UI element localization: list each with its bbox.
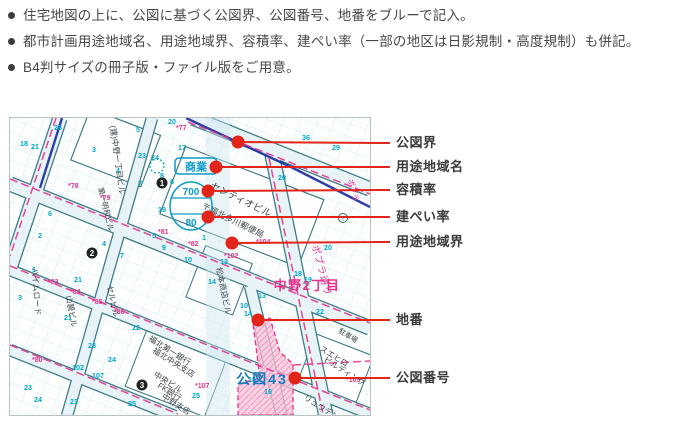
zoning-name-text: 商業 bbox=[185, 160, 208, 174]
lot-number-label: 20 bbox=[278, 173, 286, 182]
lot-number-label: 20 bbox=[324, 243, 332, 252]
lot-number-label: 9 bbox=[162, 243, 166, 252]
bullet-text: 住宅地図の上に、公図に基づく公図界、公図番号、地番をブルーで記入。 bbox=[23, 7, 474, 25]
callout-label-zoning-boundary: 用途地域界 bbox=[396, 232, 464, 252]
blue-map-sample: 1821263452324208719110131414212223242510… bbox=[10, 118, 370, 415]
landmark-post-mark: 〒 bbox=[340, 216, 346, 223]
lot-number-label: 21 bbox=[31, 142, 39, 151]
bullet-text: 都市計画用途地域名、用途地域界、容積率、建ぺい率（一部の地区は日影規制・高度規制… bbox=[23, 33, 640, 51]
callout-label-kozu-number: 公図番号 bbox=[396, 368, 450, 388]
lot-number-label: 10 bbox=[240, 301, 248, 310]
lot-number-label: 14 bbox=[208, 277, 216, 286]
lot-number-label: 25 bbox=[128, 399, 136, 408]
lot-number-label: 3 bbox=[18, 293, 22, 302]
lot-number-label: 19 bbox=[158, 205, 166, 214]
lot-number-label: 8 bbox=[170, 177, 174, 186]
bullet-icon bbox=[8, 38, 15, 45]
lot-number-label: 16 bbox=[264, 387, 272, 396]
lot-number-label: 25 bbox=[192, 391, 200, 400]
boundary-number-label: *104 bbox=[256, 239, 271, 246]
bullet-icon bbox=[8, 12, 15, 19]
lot-number-label: 6 bbox=[48, 209, 52, 218]
kozu-number-text: 公図43 bbox=[236, 371, 288, 387]
bullet-item: 住宅地図の上に、公図に基づく公図界、公図番号、地番をブルーで記入。 bbox=[8, 7, 698, 25]
boundary-number-label: *102 bbox=[224, 253, 239, 260]
boundary-number-label: *78 bbox=[68, 183, 79, 190]
lot-number-label: 18 bbox=[20, 139, 28, 148]
lot-number-label: 107 bbox=[92, 371, 104, 380]
lot-number-label: 7 bbox=[138, 179, 142, 188]
lot-number-label: 23 bbox=[24, 383, 32, 392]
floor-area-ratio-text: 700 bbox=[183, 187, 200, 198]
boundary-number-label: *85 bbox=[92, 299, 103, 306]
lot-number-label: 3 bbox=[92, 145, 96, 154]
callout-label-lot-number: 地番 bbox=[396, 310, 423, 330]
lot-number-label: 4 bbox=[102, 239, 106, 248]
lot-number-label: 21 bbox=[74, 275, 82, 284]
boundary-number-label: *83 bbox=[48, 279, 59, 286]
boundary-number-label: *80 bbox=[32, 357, 43, 364]
lot-number-label: 24 bbox=[34, 395, 42, 404]
lot-number-label: 23 bbox=[88, 341, 96, 350]
building-coverage-text: 80 bbox=[185, 218, 197, 229]
lot-number-label: 29 bbox=[332, 143, 340, 152]
blue-wash-band bbox=[206, 118, 230, 415]
landmark-icon: 〒 bbox=[339, 214, 348, 223]
lot-number-label: 5 bbox=[136, 125, 140, 134]
bullet-item: B4判サイズの冊子版・ファイル版をご用意。 bbox=[8, 59, 698, 77]
callout-label-floor-area-ratio: 容積率 bbox=[396, 180, 437, 200]
lot-number-label: 13 bbox=[258, 291, 266, 300]
boundary-number-label: *107 bbox=[195, 383, 210, 390]
lot-number-label: 17 bbox=[178, 143, 186, 152]
lot-number-label: 22 bbox=[132, 323, 140, 332]
lot-number-label: 18 bbox=[294, 269, 302, 278]
block-number-text: 1 bbox=[160, 179, 165, 188]
bullet-icon bbox=[8, 64, 15, 71]
callout-label-building-coverage: 建ぺい率 bbox=[396, 207, 450, 227]
lot-number-label: 2 bbox=[38, 231, 42, 240]
lot-number-label: 23 bbox=[138, 151, 146, 160]
callout-label-kozu-boundary: 公図界 bbox=[396, 133, 437, 153]
lot-number-label: 1 bbox=[202, 233, 206, 242]
lot-number-label: 24 bbox=[108, 355, 116, 364]
lot-number-label: 24 bbox=[151, 153, 159, 162]
lot-number-label: 5 bbox=[152, 231, 156, 240]
bullet-item: 都市計画用途地域名、用途地域界、容積率、建ぺい率（一部の地区は日影規制・高度規制… bbox=[8, 33, 698, 51]
lot-number-label: 14 bbox=[244, 309, 252, 318]
lot-number-label: 23 bbox=[70, 397, 78, 406]
block-number-text: 3 bbox=[140, 381, 145, 390]
page: { "bullets": [ "住宅地図の上に、公図に基づく公図界、公図番号、地… bbox=[0, 0, 700, 426]
lot-number-label: 7 bbox=[120, 251, 124, 260]
callout-label-zoning-name: 用途地域名 bbox=[396, 157, 464, 177]
boundary-number-label: *77 bbox=[176, 125, 187, 132]
lot-number-label: 10 bbox=[184, 255, 192, 264]
boundary-number-label: *81 bbox=[158, 229, 169, 236]
block-number-text: 2 bbox=[90, 249, 95, 258]
lot-number-label: 20 bbox=[168, 118, 176, 126]
bullet-text: B4判サイズの冊子版・ファイル版をご用意。 bbox=[23, 59, 300, 77]
lot-number-label: 102 bbox=[72, 363, 84, 372]
lot-number-label: 36 bbox=[302, 133, 310, 142]
feature-bullet-list: 住宅地図の上に、公図に基づく公図界、公図番号、地番をブルーで記入。 都市計画用途… bbox=[8, 7, 698, 85]
boundary-number-label: *82 bbox=[188, 241, 199, 248]
lot-number-label: 26 bbox=[54, 123, 62, 132]
map-sample-image: 1821263452324208719110131414212223242510… bbox=[10, 118, 370, 415]
lot-number-label: 22 bbox=[316, 307, 324, 316]
